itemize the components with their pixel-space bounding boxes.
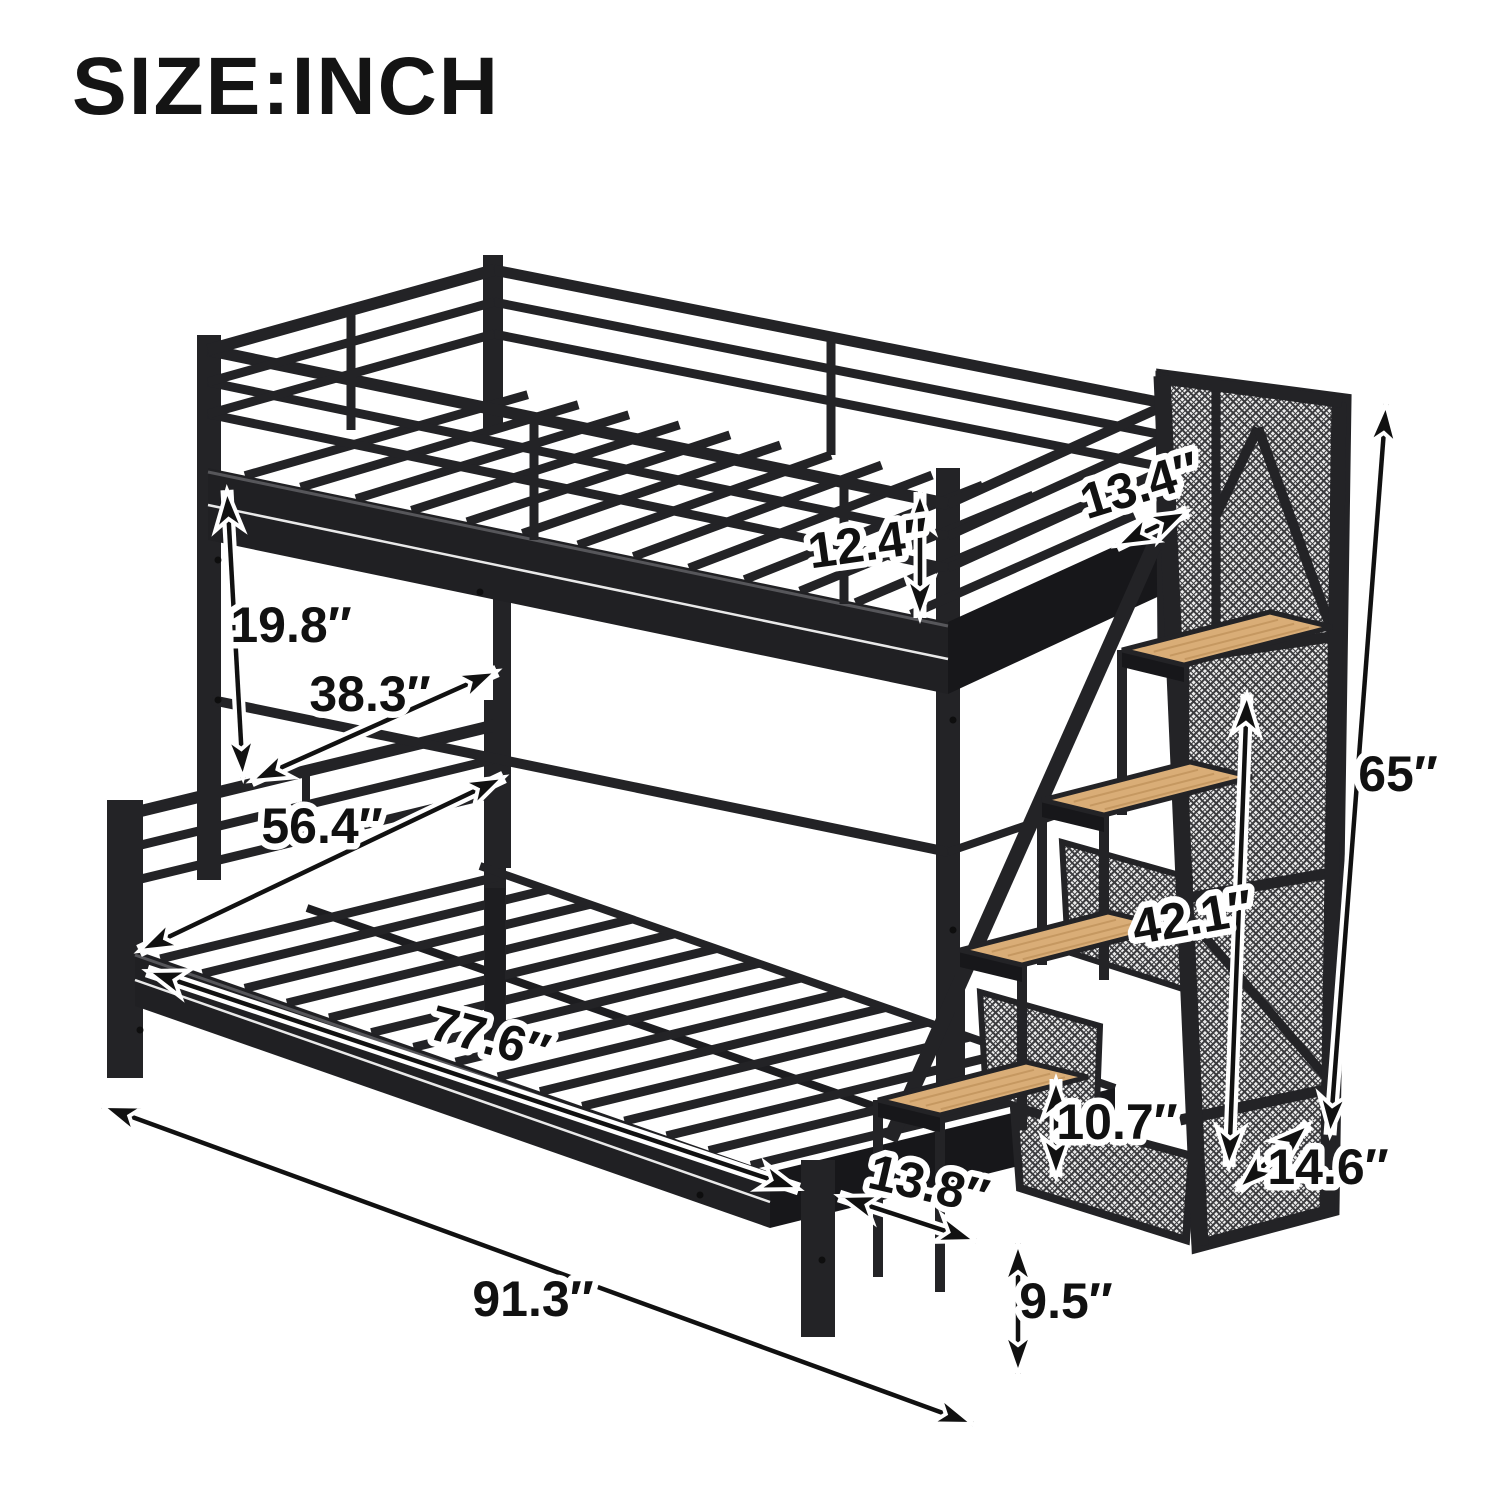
dim-label-upper-bed-width: 38.3″ [309, 666, 430, 722]
dim-label-lower-bed-width: 56.4″ [261, 798, 382, 854]
dim-label-bunk-gap-height: 19.8″ [230, 597, 351, 653]
bunk-bed-illustration: 13.4″12.4″19.8″38.3″56.4″77.6″91.3″42.1″… [0, 0, 1500, 1500]
dim-label-overall-length: 91.3″ [472, 1271, 593, 1327]
upper-guardrail-back [494, 270, 1168, 468]
dimension-overall-length: 91.3″ [102, 1106, 973, 1424]
size-diagram: SIZE:INCH [0, 0, 1500, 1500]
dim-label-leg-height: 9.5″ [1019, 1273, 1113, 1329]
dim-label-staircase-depth: 14.6″ [1267, 1139, 1388, 1195]
dim-label-step-rise: 10.7″ [1056, 1094, 1177, 1150]
dimension-line [102, 1106, 973, 1424]
dim-label-overall-height: 65″ [1358, 746, 1438, 802]
dimension-leg-height: 9.5″ [1004, 1243, 1113, 1374]
